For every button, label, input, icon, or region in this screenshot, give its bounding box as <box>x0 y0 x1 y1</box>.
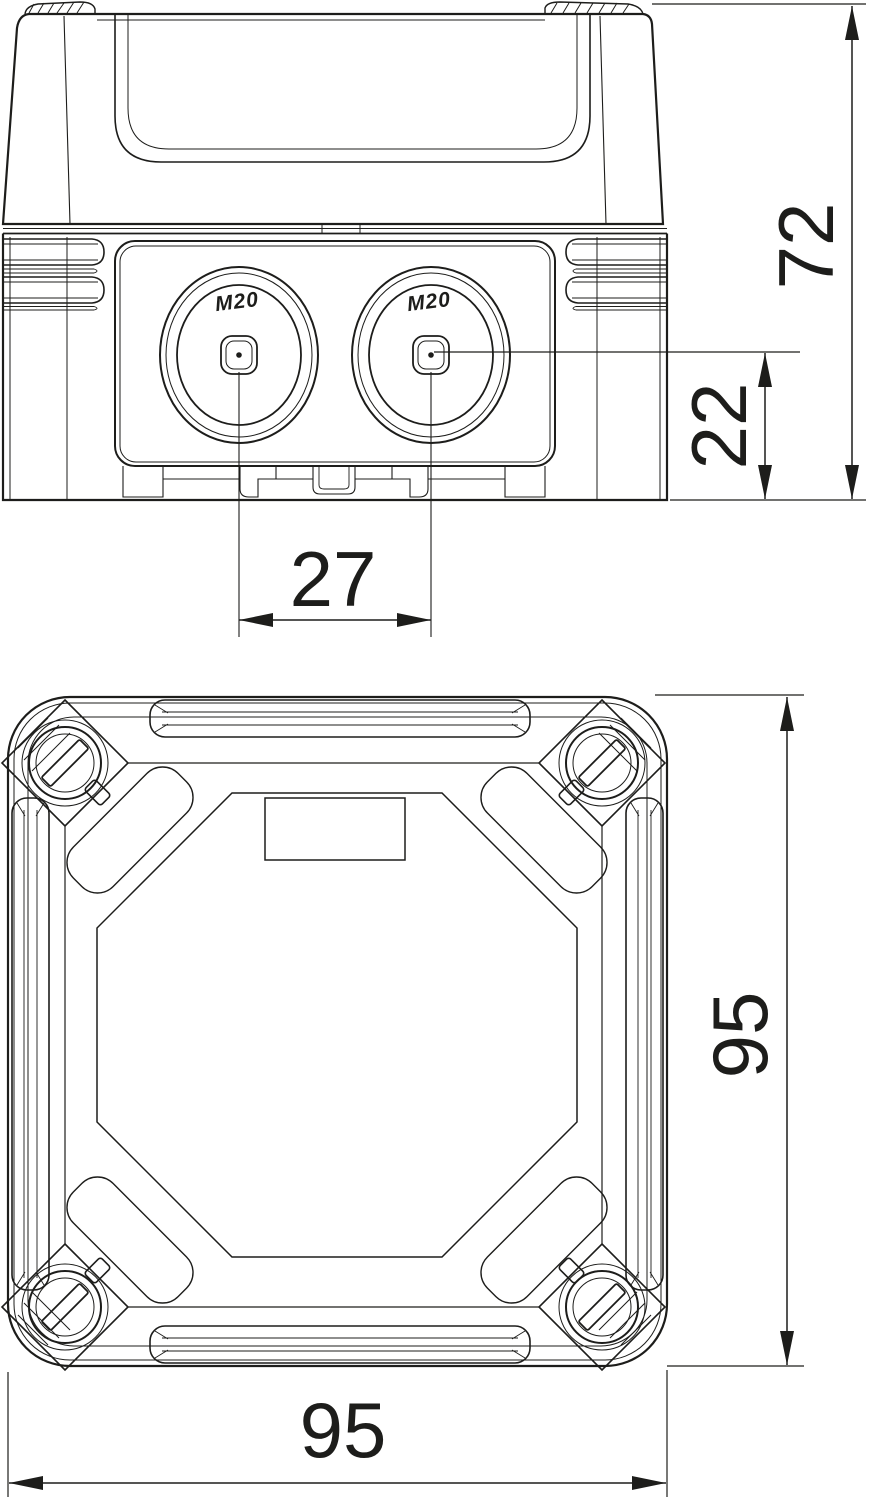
dimension-entry-spacing: 27 <box>290 540 377 618</box>
bottom-clip-details <box>123 466 545 497</box>
entry-size-label-right: M20 <box>406 289 452 315</box>
screw-bottom-right <box>558 1257 645 1350</box>
entry-size-label-left: M20 <box>214 289 260 315</box>
dimension-plan-height: 95 <box>701 992 779 1079</box>
cover-screws <box>22 720 645 1350</box>
screw-bottom-left <box>22 1257 111 1350</box>
plan-view-dimensions <box>8 695 804 1497</box>
dimension-overall-height: 72 <box>767 203 845 290</box>
dimension-entry-height: 22 <box>680 383 758 470</box>
dimension-plan-width: 95 <box>300 1391 387 1469</box>
diagonal-corner-pads <box>58 758 616 1312</box>
corner-grip-hatches <box>18 718 651 1345</box>
drawing-linework <box>0 0 869 1500</box>
screw-top-right <box>558 720 645 806</box>
cover-seal-octagon <box>97 793 577 1257</box>
label-field <box>265 798 405 860</box>
corner-diamonds <box>2 700 665 1370</box>
plan-view <box>2 697 667 1370</box>
technical-drawing-canvas: M20 M20 72 22 27 95 95 <box>0 0 869 1500</box>
edge-grip-slots <box>12 700 663 1363</box>
front-view-dimensions <box>239 4 866 627</box>
